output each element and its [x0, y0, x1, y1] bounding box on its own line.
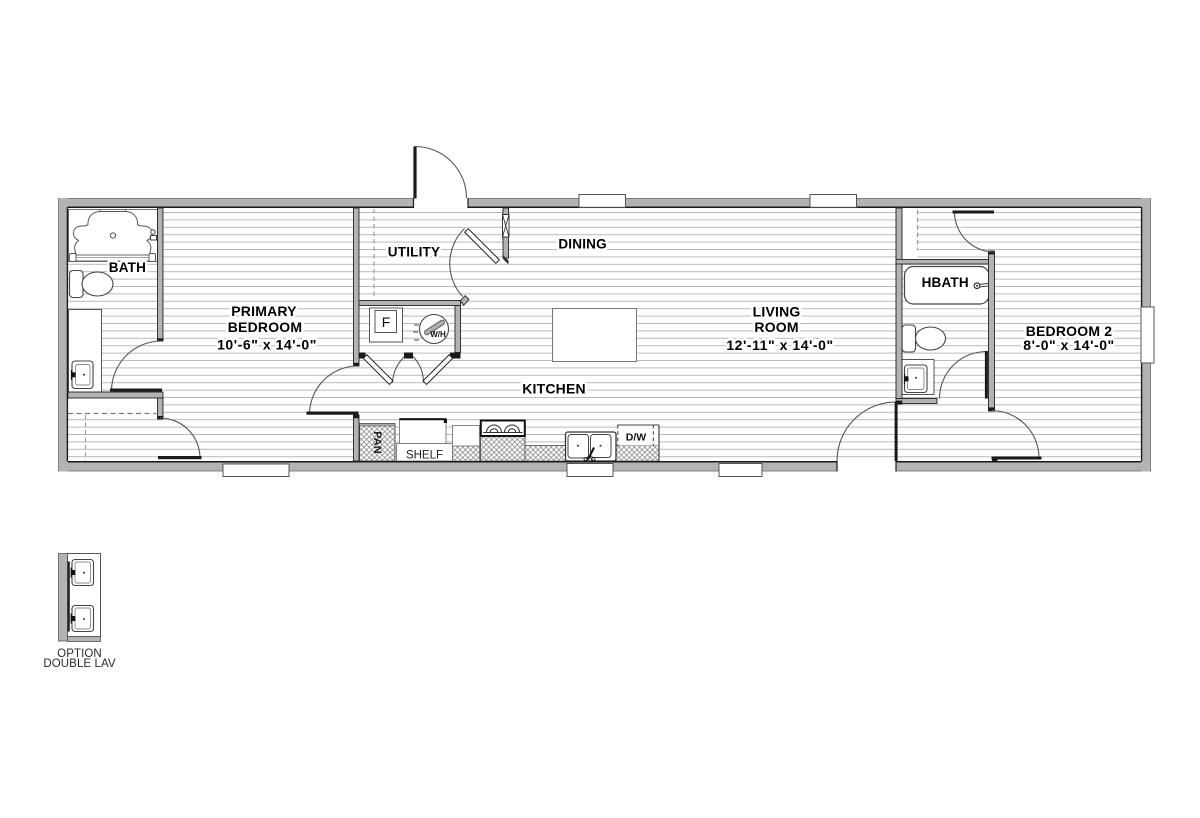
svg-text:10'-6" x 14'-0": 10'-6" x 14'-0" [217, 337, 317, 353]
svg-text:BATH: BATH [109, 260, 146, 275]
svg-text:KITCHEN: KITCHEN [522, 381, 586, 397]
svg-text:DOUBLE LAV: DOUBLE LAV [43, 658, 116, 670]
svg-text:PRIMARY: PRIMARY [231, 303, 297, 319]
svg-text:PAN: PAN [371, 431, 383, 453]
svg-text:HBATH: HBATH [922, 275, 969, 290]
svg-text:W/H: W/H [430, 330, 446, 339]
svg-text:8'-0" x 14'-0": 8'-0" x 14'-0" [1023, 337, 1114, 353]
svg-text:BEDROOM: BEDROOM [228, 319, 303, 335]
svg-text:ROOM: ROOM [754, 319, 798, 335]
svg-text:DINING: DINING [558, 237, 606, 252]
svg-text:12'-11" x 14'-0": 12'-11" x 14'-0" [726, 337, 833, 353]
svg-text:F: F [382, 314, 391, 330]
svg-text:UTILITY: UTILITY [388, 245, 440, 260]
svg-text:LIVING: LIVING [753, 304, 801, 320]
svg-text:D/W: D/W [626, 432, 647, 444]
svg-text:SHELF: SHELF [406, 450, 443, 462]
